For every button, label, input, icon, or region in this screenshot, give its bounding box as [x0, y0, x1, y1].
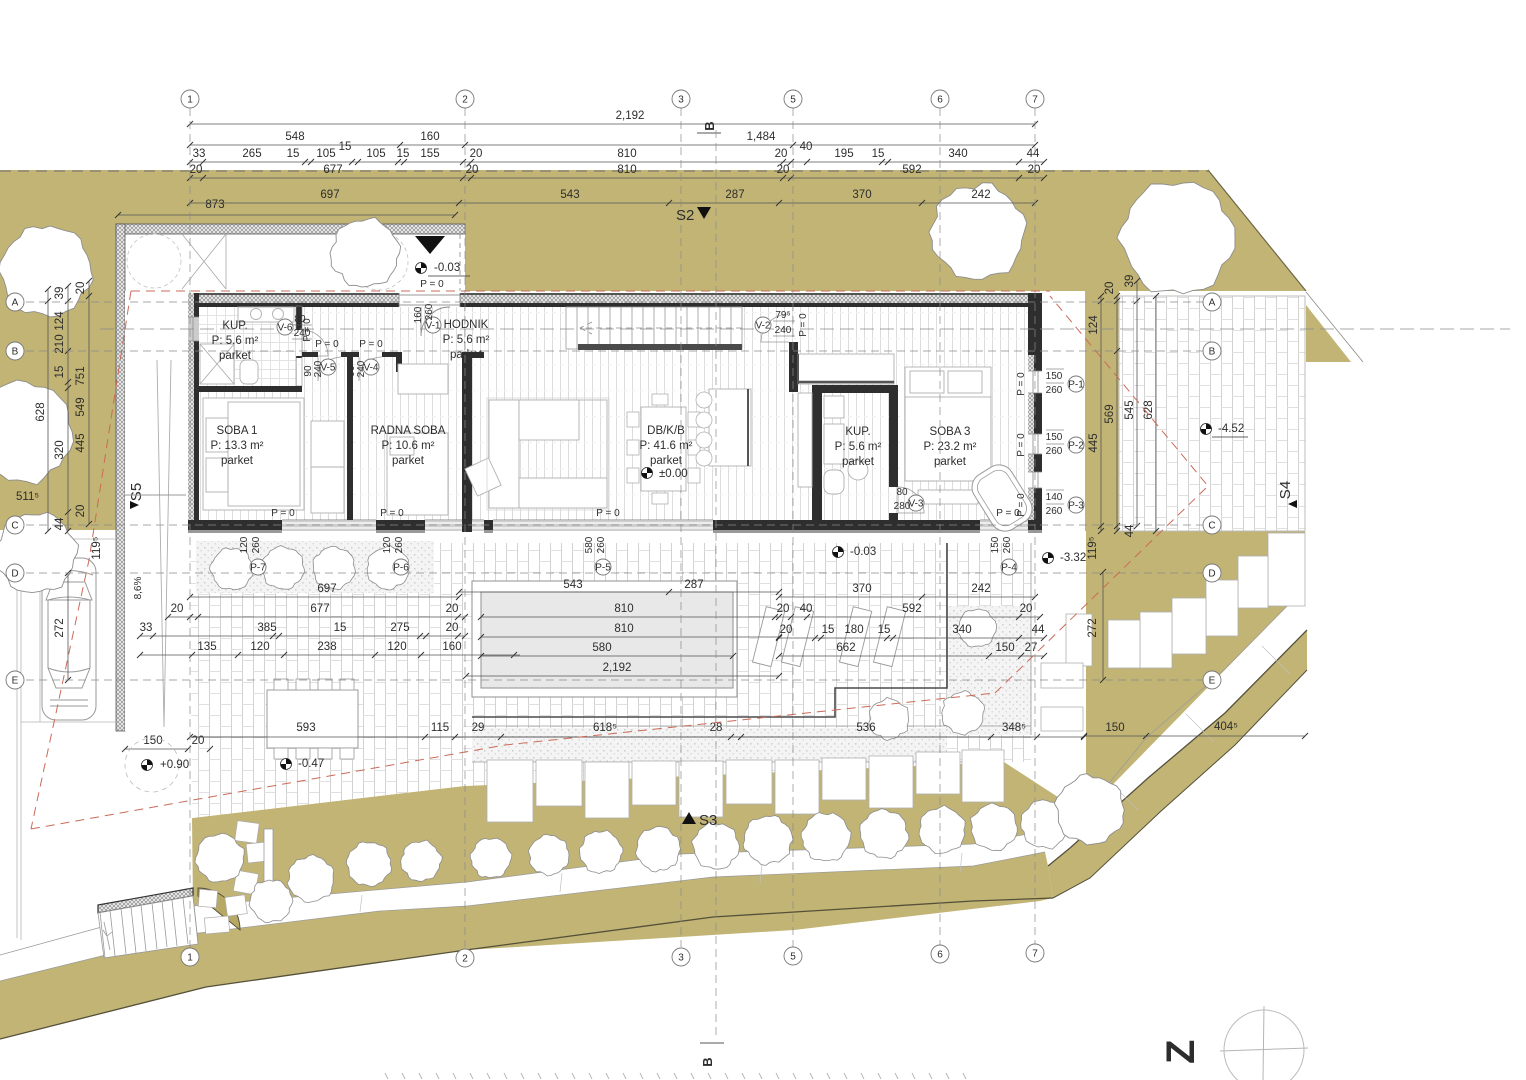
svg-text:B: B: [700, 1057, 715, 1066]
svg-text:15: 15: [822, 624, 835, 636]
svg-text:445: 445: [1088, 433, 1100, 452]
svg-text:348⁵: 348⁵: [1002, 722, 1026, 734]
svg-text:C: C: [11, 521, 18, 532]
svg-text:580: 580: [584, 536, 595, 553]
svg-text:parket: parket: [219, 350, 252, 362]
svg-text:593: 593: [296, 722, 315, 734]
svg-text:618⁵: 618⁵: [593, 722, 617, 734]
svg-text:150: 150: [1105, 722, 1124, 734]
svg-text:1: 1: [187, 95, 193, 106]
svg-text:404⁵: 404⁵: [1214, 721, 1238, 733]
svg-text:S3: S3: [699, 812, 717, 829]
svg-text:P = 0: P = 0: [1016, 493, 1027, 517]
svg-text:569: 569: [1104, 404, 1116, 423]
svg-text:287: 287: [725, 189, 744, 201]
svg-text:15: 15: [872, 148, 885, 160]
svg-text:260: 260: [424, 303, 435, 320]
svg-text:S4: S4: [1277, 481, 1294, 499]
svg-text:P-2: P-2: [1068, 441, 1084, 452]
svg-text:180: 180: [844, 624, 863, 636]
svg-text:P-1: P-1: [1068, 380, 1084, 391]
svg-text:810: 810: [614, 623, 633, 635]
svg-text:SOBA 1: SOBA 1: [217, 425, 258, 437]
svg-text:105: 105: [316, 148, 335, 160]
svg-text:260: 260: [1046, 506, 1063, 517]
svg-text:580: 580: [592, 642, 611, 654]
svg-text:445: 445: [75, 433, 87, 452]
svg-text:272: 272: [1087, 618, 1099, 637]
svg-text:340: 340: [948, 148, 967, 160]
svg-text:E: E: [1209, 676, 1216, 687]
svg-text:242: 242: [971, 583, 990, 595]
svg-text:-0.03: -0.03: [850, 546, 876, 558]
svg-text:287: 287: [684, 579, 703, 591]
svg-text:697: 697: [320, 189, 339, 201]
svg-text:242: 242: [971, 189, 990, 201]
svg-text:15: 15: [878, 624, 891, 636]
svg-text:33: 33: [140, 622, 153, 634]
svg-text:V-3: V-3: [908, 499, 923, 510]
svg-text:20: 20: [75, 282, 87, 295]
svg-text:P = 0: P = 0: [420, 279, 444, 290]
svg-text:3: 3: [678, 953, 684, 964]
svg-text:20: 20: [1020, 603, 1033, 615]
svg-text:A: A: [1209, 298, 1216, 309]
svg-text:511⁵: 511⁵: [16, 491, 39, 503]
svg-text:P: 13.3 m²: P: 13.3 m²: [210, 440, 263, 452]
svg-text:B: B: [702, 121, 717, 130]
svg-text:parket: parket: [650, 455, 683, 467]
svg-text:120: 120: [250, 641, 269, 653]
svg-text:150: 150: [995, 642, 1014, 654]
svg-text:C: C: [1208, 521, 1215, 532]
svg-text:135: 135: [197, 641, 216, 653]
svg-text:340: 340: [952, 624, 971, 636]
svg-text:+0.90: +0.90: [160, 759, 189, 771]
svg-text:RADNA SOBA: RADNA SOBA: [371, 425, 446, 437]
svg-text:44: 44: [1032, 624, 1045, 636]
svg-text:D: D: [11, 569, 18, 580]
svg-text:20: 20: [775, 148, 788, 160]
svg-text:240: 240: [356, 360, 367, 377]
svg-text:873: 873: [205, 199, 224, 211]
svg-text:P = 0: P = 0: [798, 313, 809, 337]
svg-text:±0.00: ±0.00: [659, 468, 688, 480]
svg-text:33: 33: [193, 148, 206, 160]
svg-text:8,6%: 8,6%: [133, 576, 144, 599]
svg-text:150: 150: [1046, 432, 1063, 443]
svg-text:P = 0: P = 0: [315, 339, 339, 350]
svg-text:124: 124: [54, 311, 66, 331]
svg-text:628: 628: [35, 402, 47, 421]
svg-text:119⁵: 119⁵: [1087, 536, 1099, 559]
svg-text:-0.03: -0.03: [434, 262, 460, 274]
svg-text:240: 240: [313, 360, 324, 377]
svg-text:P: 23.2 m²: P: 23.2 m²: [923, 441, 976, 453]
svg-text:20: 20: [190, 164, 203, 176]
svg-text:V-2: V-2: [755, 321, 770, 332]
svg-text:29: 29: [472, 722, 485, 734]
svg-text:20: 20: [171, 603, 184, 615]
svg-text:B: B: [1209, 347, 1216, 358]
svg-text:2: 2: [462, 954, 468, 965]
svg-text:V-6: V-6: [277, 323, 292, 334]
svg-text:20: 20: [777, 603, 790, 615]
svg-text:260: 260: [1002, 536, 1013, 553]
svg-text:160: 160: [442, 641, 461, 653]
svg-text:20: 20: [446, 603, 459, 615]
svg-text:P = 0: P = 0: [302, 318, 313, 342]
svg-text:280: 280: [894, 501, 911, 512]
svg-text:677: 677: [323, 164, 342, 176]
svg-text:7: 7: [1032, 949, 1038, 960]
svg-text:155: 155: [420, 148, 439, 160]
svg-text:20: 20: [446, 622, 459, 634]
svg-text:3: 3: [678, 95, 684, 106]
svg-text:260: 260: [596, 536, 607, 553]
svg-text:P = 0: P = 0: [380, 508, 404, 519]
svg-text:V-1: V-1: [425, 321, 440, 332]
svg-text:275: 275: [390, 622, 409, 634]
svg-text:20: 20: [75, 505, 87, 518]
svg-text:P-3: P-3: [1068, 501, 1084, 512]
svg-text:751: 751: [75, 366, 87, 385]
svg-text:S5: S5: [128, 483, 145, 501]
svg-text:697: 697: [317, 583, 336, 595]
svg-text:15: 15: [334, 622, 347, 634]
svg-text:6: 6: [937, 95, 943, 106]
svg-text:40: 40: [800, 603, 813, 615]
svg-text:677: 677: [310, 603, 329, 615]
svg-text:105: 105: [366, 148, 385, 160]
svg-text:15: 15: [397, 148, 410, 160]
svg-text:160: 160: [420, 131, 439, 143]
svg-text:140: 140: [1046, 492, 1063, 503]
svg-text:39: 39: [1124, 275, 1136, 288]
svg-text:P-4: P-4: [1001, 563, 1017, 574]
svg-text:P = 0: P = 0: [596, 508, 620, 519]
svg-text:39: 39: [54, 287, 66, 300]
svg-text:265: 265: [242, 148, 261, 160]
svg-text:124: 124: [1088, 315, 1100, 335]
svg-text:15: 15: [54, 366, 66, 379]
svg-text:238: 238: [317, 641, 336, 653]
svg-text:79⁵: 79⁵: [775, 310, 790, 321]
svg-text:115: 115: [431, 722, 449, 734]
svg-text:662: 662: [836, 642, 855, 654]
svg-text:E: E: [12, 676, 19, 687]
svg-text:P: 10.6 m²: P: 10.6 m²: [381, 440, 434, 452]
svg-text:15: 15: [339, 141, 352, 153]
svg-text:SOBA 3: SOBA 3: [930, 426, 971, 438]
svg-text:260: 260: [1046, 385, 1063, 396]
svg-text:260: 260: [251, 536, 262, 553]
svg-text:P = 0: P = 0: [271, 508, 295, 519]
svg-text:27: 27: [1025, 642, 1038, 654]
svg-text:150: 150: [143, 735, 162, 747]
svg-text:-3.32: -3.32: [1060, 552, 1086, 564]
svg-text:P-5: P-5: [595, 563, 611, 574]
svg-text:parket: parket: [392, 455, 425, 467]
svg-text:272: 272: [54, 618, 66, 637]
svg-text:40: 40: [800, 141, 813, 153]
svg-text:A: A: [12, 298, 19, 309]
svg-text:120: 120: [387, 641, 406, 653]
svg-text:150: 150: [990, 536, 1001, 553]
svg-text:-0.47: -0.47: [298, 758, 324, 770]
svg-text:44: 44: [1027, 148, 1040, 160]
svg-text:20: 20: [1028, 164, 1041, 176]
svg-text:2: 2: [462, 95, 468, 106]
svg-text:parket: parket: [450, 349, 483, 361]
svg-text:810: 810: [614, 603, 633, 615]
svg-text:5: 5: [790, 95, 796, 106]
svg-text:parket: parket: [221, 455, 254, 467]
svg-text:5: 5: [790, 952, 796, 963]
svg-text:240: 240: [775, 325, 792, 336]
svg-text:6: 6: [937, 950, 943, 961]
svg-text:545: 545: [1124, 400, 1136, 419]
svg-text:385: 385: [257, 622, 276, 634]
svg-text:P: 41.6 m²: P: 41.6 m²: [639, 440, 692, 452]
svg-text:1: 1: [187, 953, 193, 964]
svg-text:D: D: [1208, 569, 1215, 580]
svg-text:592: 592: [902, 603, 921, 615]
svg-text:Z: Z: [1159, 1040, 1203, 1064]
svg-text:44: 44: [1124, 524, 1136, 537]
svg-text:1,484: 1,484: [747, 131, 776, 143]
svg-text:810: 810: [617, 164, 636, 176]
svg-text:160: 160: [413, 306, 424, 323]
svg-text:7: 7: [1032, 95, 1038, 106]
svg-text:120: 120: [239, 536, 250, 553]
svg-text:20: 20: [470, 148, 483, 160]
svg-text:B: B: [12, 347, 19, 358]
svg-text:2,192: 2,192: [616, 110, 645, 122]
svg-text:P: 5.6 m²: P: 5.6 m²: [835, 441, 882, 453]
svg-text:15: 15: [287, 148, 300, 160]
svg-text:P = 0: P = 0: [1016, 372, 1027, 396]
svg-text:543: 543: [560, 189, 579, 201]
svg-text:44: 44: [54, 517, 66, 530]
svg-text:20: 20: [780, 624, 793, 636]
svg-text:810: 810: [617, 148, 636, 160]
svg-text:P = 0: P = 0: [359, 339, 383, 350]
svg-text:536: 536: [856, 722, 875, 734]
svg-text:KUP.: KUP.: [845, 426, 870, 438]
svg-text:P = 0: P = 0: [1016, 433, 1027, 457]
svg-text:P: 5.6 m²: P: 5.6 m²: [443, 334, 490, 346]
svg-text:20: 20: [466, 164, 479, 176]
svg-text:parket: parket: [842, 456, 875, 468]
svg-text:320: 320: [54, 440, 66, 459]
svg-text:2,192: 2,192: [603, 662, 632, 674]
svg-text:KUP.: KUP.: [222, 320, 247, 332]
svg-text:DB/K/B: DB/K/B: [647, 425, 685, 437]
svg-text:P: 5.6 m²: P: 5.6 m²: [212, 335, 259, 347]
svg-text:548: 548: [285, 131, 304, 143]
svg-text:80: 80: [896, 487, 908, 498]
svg-text:P-6: P-6: [393, 563, 409, 574]
svg-text:370: 370: [852, 189, 871, 201]
svg-text:parket: parket: [934, 456, 967, 468]
svg-text:260: 260: [394, 536, 405, 553]
svg-text:S2: S2: [676, 207, 694, 224]
svg-text:-4.52: -4.52: [1218, 423, 1244, 435]
svg-text:370: 370: [852, 583, 871, 595]
svg-text:150: 150: [1046, 371, 1063, 382]
svg-text:195: 195: [834, 148, 853, 160]
svg-text:543: 543: [563, 579, 582, 591]
svg-text:592: 592: [902, 164, 921, 176]
svg-text:20: 20: [777, 164, 790, 176]
svg-text:119⁵: 119⁵: [91, 536, 103, 559]
svg-text:120: 120: [382, 536, 393, 553]
svg-text:P-7: P-7: [250, 563, 266, 574]
svg-text:260: 260: [1046, 446, 1063, 457]
svg-text:20: 20: [1104, 282, 1116, 295]
svg-text:549: 549: [75, 397, 87, 416]
